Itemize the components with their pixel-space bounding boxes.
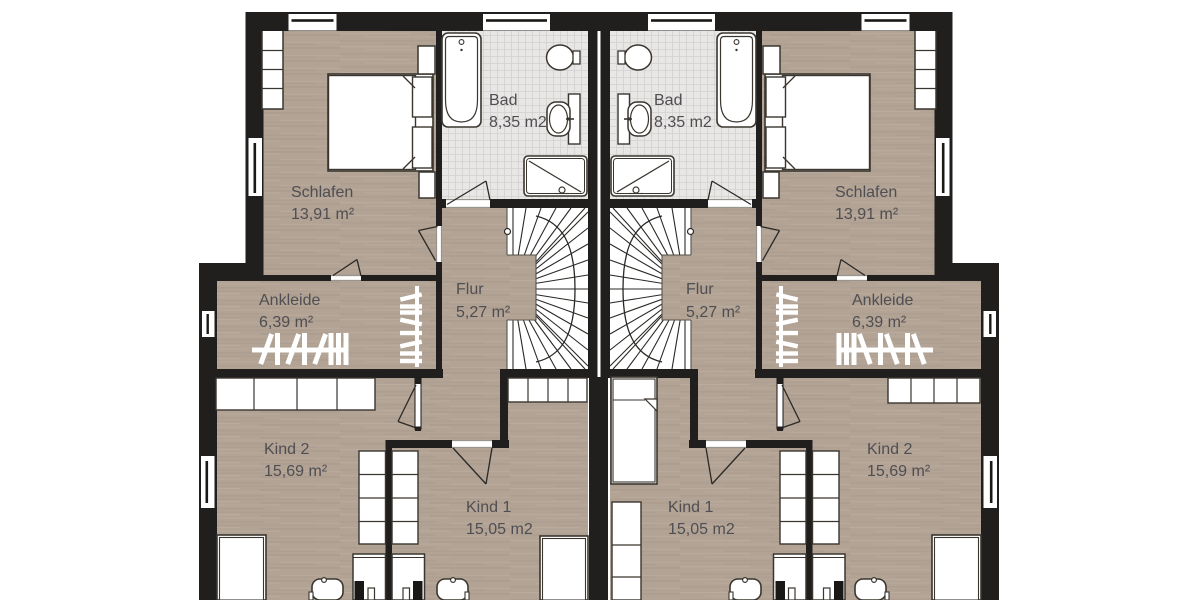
- svg-text:8,35 m2: 8,35 m2: [489, 114, 547, 131]
- svg-text:Kind 1: Kind 1: [466, 499, 511, 516]
- svg-text:5,27 m²: 5,27 m²: [686, 304, 741, 321]
- svg-text:15,69 m²: 15,69 m²: [867, 463, 931, 480]
- svg-text:Ankleide: Ankleide: [259, 292, 320, 309]
- svg-text:6,39 m²: 6,39 m²: [259, 314, 314, 331]
- svg-text:Bad: Bad: [654, 92, 682, 109]
- svg-text:Ankleide: Ankleide: [852, 292, 913, 309]
- svg-text:13,91 m²: 13,91 m²: [291, 206, 355, 223]
- svg-text:Schlafen: Schlafen: [291, 184, 353, 201]
- svg-text:8,35 m2: 8,35 m2: [654, 114, 712, 131]
- svg-text:Kind 2: Kind 2: [264, 441, 309, 458]
- svg-text:Schlafen: Schlafen: [835, 184, 897, 201]
- svg-text:Kind 2: Kind 2: [867, 441, 912, 458]
- svg-text:15,05 m2: 15,05 m2: [466, 521, 533, 538]
- svg-text:15,05 m2: 15,05 m2: [668, 521, 735, 538]
- svg-text:Flur: Flur: [686, 281, 714, 298]
- svg-text:Flur: Flur: [456, 281, 484, 298]
- svg-text:15,69 m²: 15,69 m²: [264, 463, 328, 480]
- svg-text:Kind 1: Kind 1: [668, 499, 713, 516]
- svg-text:13,91 m²: 13,91 m²: [835, 206, 899, 223]
- svg-text:6,39 m²: 6,39 m²: [852, 314, 907, 331]
- svg-text:Bad: Bad: [489, 92, 517, 109]
- svg-text:5,27 m²: 5,27 m²: [456, 304, 511, 321]
